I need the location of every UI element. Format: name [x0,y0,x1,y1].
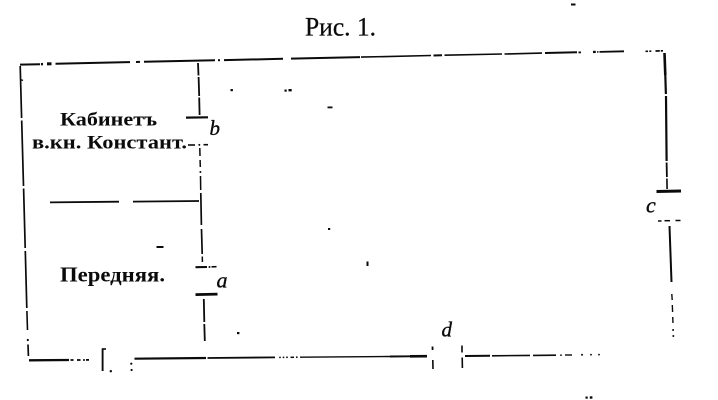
svg-text:Рис. 1.: Рис. 1. [305,13,376,42]
svg-text:d: d [442,318,453,342]
svg-text:c: c [646,193,656,218]
svg-text:a: a [217,268,228,293]
svg-text:Кабинетъ: Кабинетъ [60,110,157,131]
svg-text:b: b [210,116,221,140]
svg-text:в.кн. Констант.: в.кн. Констант. [32,133,187,154]
svg-text:Передняя.: Передняя. [60,263,165,287]
